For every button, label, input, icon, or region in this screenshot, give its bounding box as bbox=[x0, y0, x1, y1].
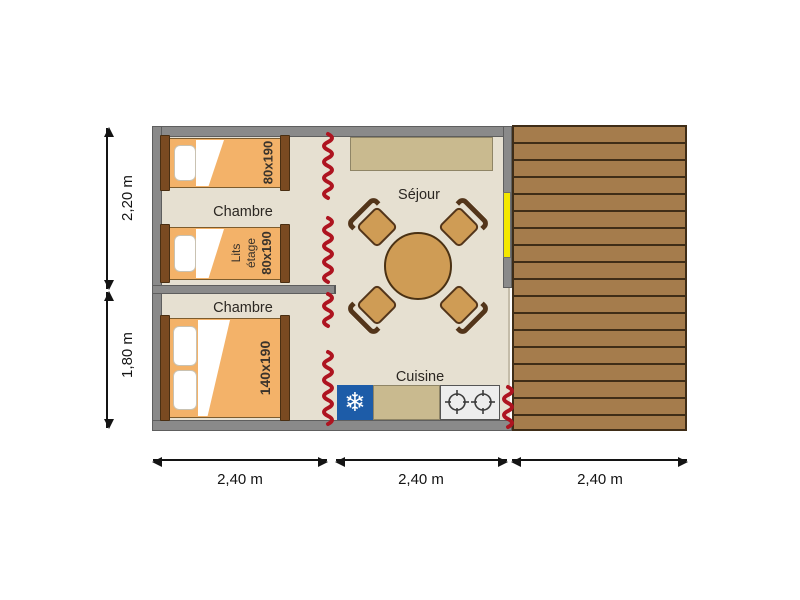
dim-arrow-width-right bbox=[512, 459, 687, 461]
canvas-wall-line bbox=[508, 288, 510, 388]
kitchen-counter bbox=[373, 385, 440, 420]
wall-bedroom-divider bbox=[152, 285, 336, 294]
fridge: ❄ bbox=[337, 385, 373, 420]
dim-arrow-height-top bbox=[106, 128, 108, 289]
bed-footboard bbox=[280, 135, 290, 191]
bunk-label-line2: étage bbox=[244, 223, 259, 283]
bunk-bed-label: Lits étage 80x190 bbox=[229, 223, 275, 283]
pillow bbox=[173, 326, 197, 366]
bunk-size-label: 80x190 bbox=[259, 223, 274, 283]
terrace-door-yellow bbox=[503, 192, 511, 258]
bed-headboard bbox=[160, 315, 170, 421]
wall-top bbox=[152, 126, 512, 137]
bed-size-label: 80x190 bbox=[261, 133, 276, 193]
pillow bbox=[174, 145, 196, 181]
dim-label-width-left: 2,40 m bbox=[200, 471, 280, 489]
wall-bottom bbox=[152, 420, 512, 431]
dining-table bbox=[384, 232, 452, 300]
stove bbox=[440, 385, 500, 420]
bed-headboard bbox=[160, 224, 170, 283]
bed-footboard bbox=[280, 224, 290, 283]
dim-label-width-middle: 2,40 m bbox=[381, 471, 461, 489]
dim-arrow-width-middle bbox=[336, 459, 507, 461]
room-label-bedroom-bottom: Chambre bbox=[193, 300, 293, 316]
bunk-label-line1: Lits bbox=[229, 223, 244, 283]
room-label-bedroom-top: Chambre bbox=[193, 204, 293, 220]
bed-size-label: 140x190 bbox=[257, 328, 273, 408]
dim-label-width-right: 2,40 m bbox=[560, 471, 640, 489]
room-label-living: Séjour bbox=[369, 187, 469, 203]
dim-label-height-top: 2,20 m bbox=[119, 158, 137, 238]
pillow bbox=[173, 370, 197, 410]
terrace-deck bbox=[512, 125, 687, 431]
dim-label-height-bottom: 1,80 m bbox=[119, 315, 137, 395]
room-label-kitchen: Cuisine bbox=[370, 369, 470, 385]
floorplan: 80x190 Lits étage 80x190 140x190 Chambre… bbox=[0, 0, 800, 600]
dim-arrow-height-bottom bbox=[106, 292, 108, 428]
dim-arrow-width-left bbox=[153, 459, 327, 461]
stove-burners bbox=[441, 386, 498, 418]
bed-footboard bbox=[280, 315, 290, 421]
pillow bbox=[174, 235, 196, 272]
snowflake-icon: ❄ bbox=[344, 388, 366, 418]
bed-headboard bbox=[160, 135, 170, 191]
sofa-bench bbox=[350, 137, 493, 171]
